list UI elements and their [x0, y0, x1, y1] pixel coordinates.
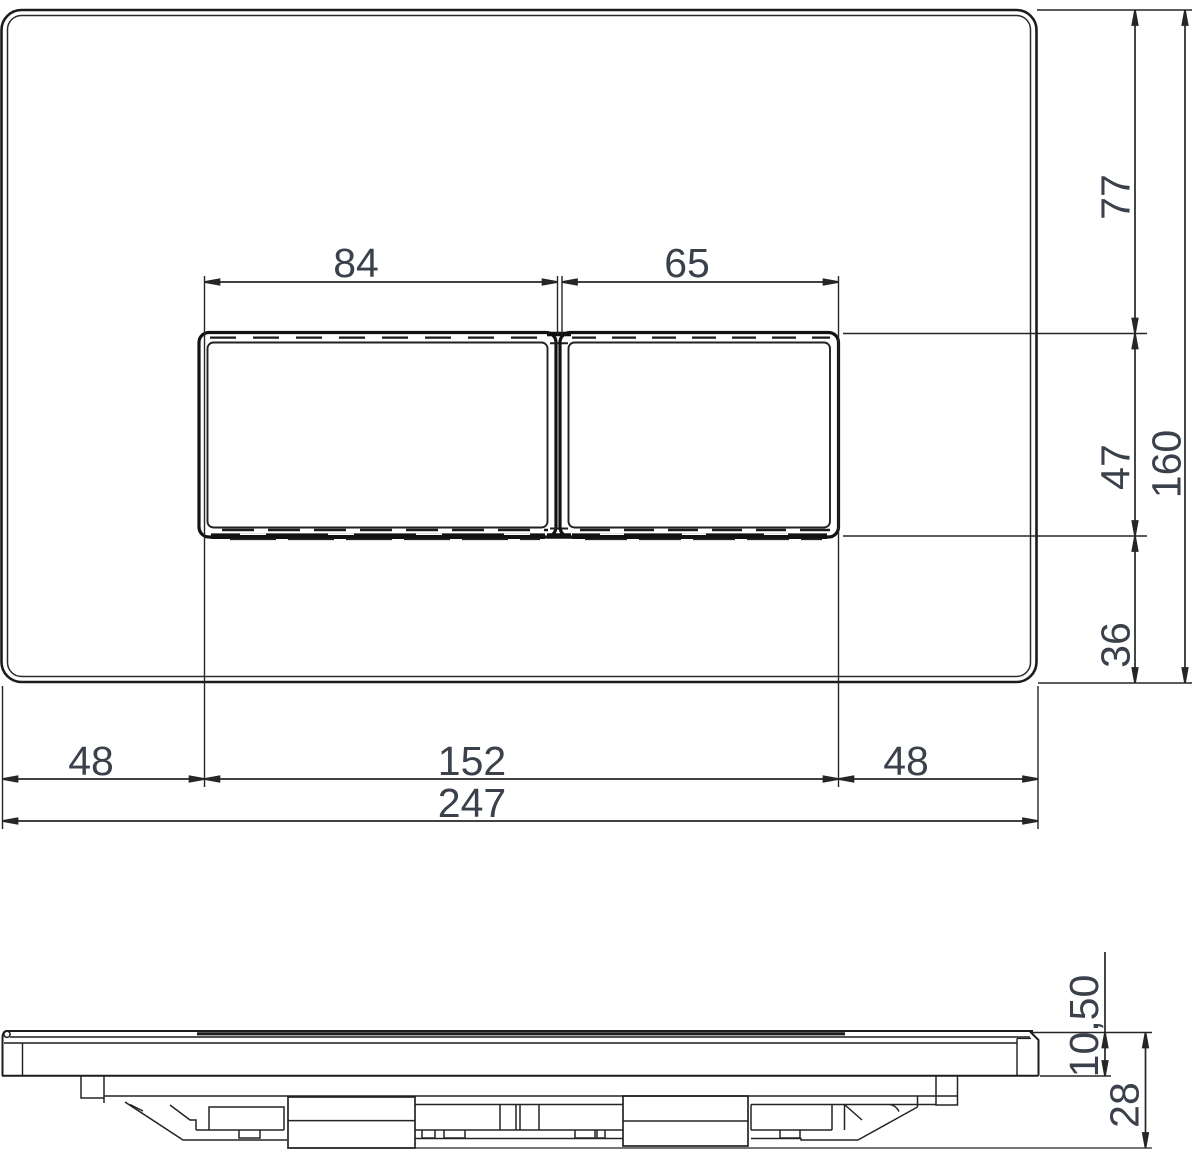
svg-text:77: 77 — [1093, 174, 1139, 220]
svg-text:36: 36 — [1093, 622, 1139, 668]
svg-text:48: 48 — [883, 738, 929, 784]
svg-text:84: 84 — [333, 240, 379, 286]
svg-text:28: 28 — [1102, 1082, 1148, 1128]
svg-text:47: 47 — [1093, 444, 1139, 490]
svg-text:160: 160 — [1144, 430, 1190, 498]
svg-text:152: 152 — [438, 738, 506, 784]
svg-text:48: 48 — [68, 738, 114, 784]
svg-text:247: 247 — [438, 780, 506, 826]
svg-text:10,50: 10,50 — [1061, 975, 1107, 1078]
svg-text:65: 65 — [664, 240, 710, 286]
